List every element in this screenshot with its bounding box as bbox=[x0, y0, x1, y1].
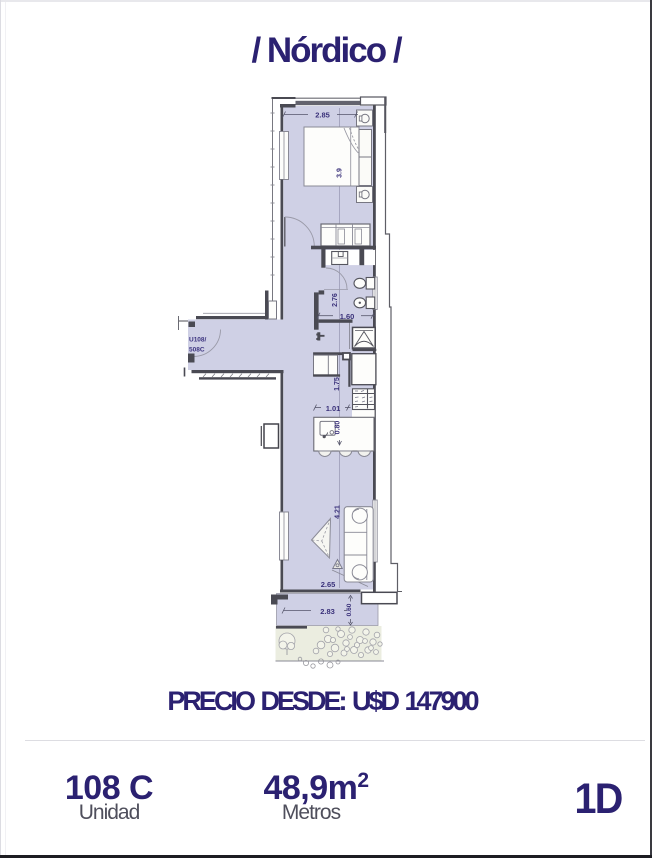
svg-text:2.83: 2.83 bbox=[320, 607, 335, 616]
svg-text:2.85: 2.85 bbox=[315, 111, 330, 120]
svg-text:U108/: U108/ bbox=[189, 337, 207, 344]
svg-text:2.76: 2.76 bbox=[332, 293, 339, 307]
svg-text:1.01: 1.01 bbox=[326, 404, 341, 413]
svg-text:1.60: 1.60 bbox=[340, 312, 355, 321]
svg-text:1.75: 1.75 bbox=[334, 377, 341, 391]
svg-text:4.21: 4.21 bbox=[335, 505, 342, 519]
svg-text:3.9: 3.9 bbox=[337, 168, 344, 178]
svg-text:0.80: 0.80 bbox=[335, 421, 342, 435]
svg-text:2.65: 2.65 bbox=[321, 580, 336, 589]
svg-text:508C: 508C bbox=[189, 347, 205, 354]
svg-text:0.60: 0.60 bbox=[346, 603, 353, 616]
